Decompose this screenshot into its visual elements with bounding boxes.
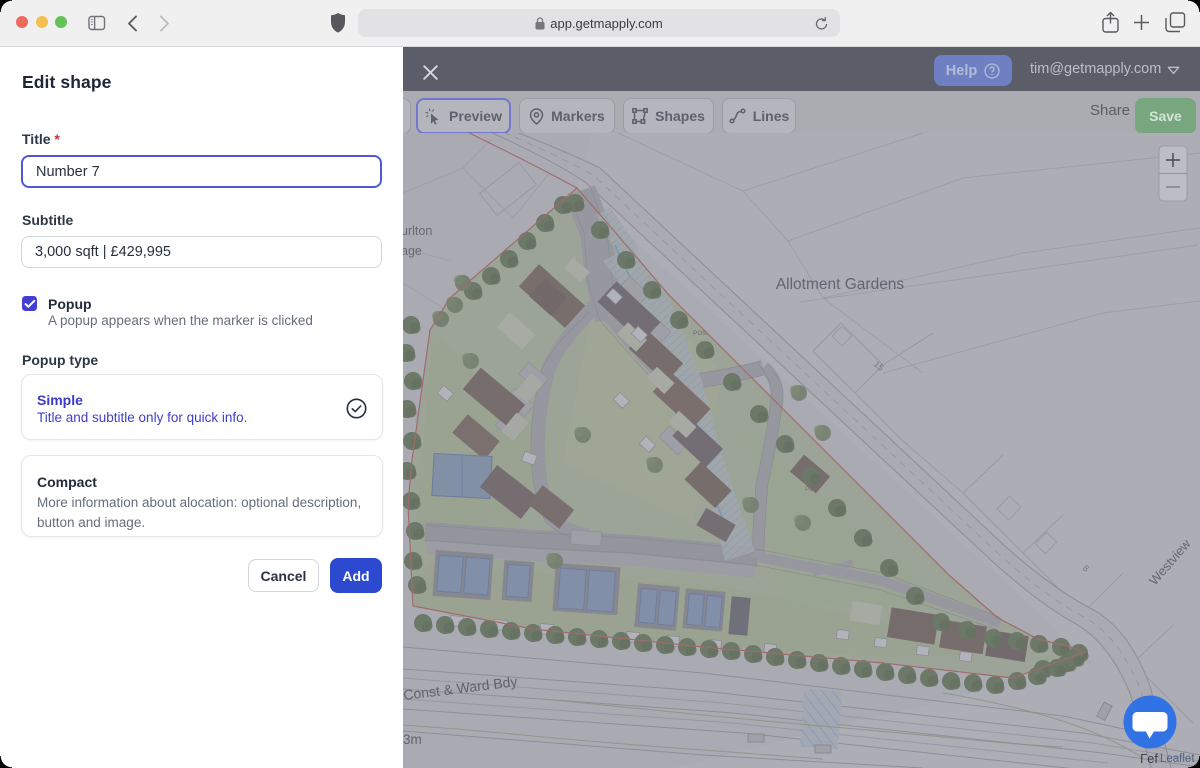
- svg-text:Γef: Γef: [1140, 751, 1158, 766]
